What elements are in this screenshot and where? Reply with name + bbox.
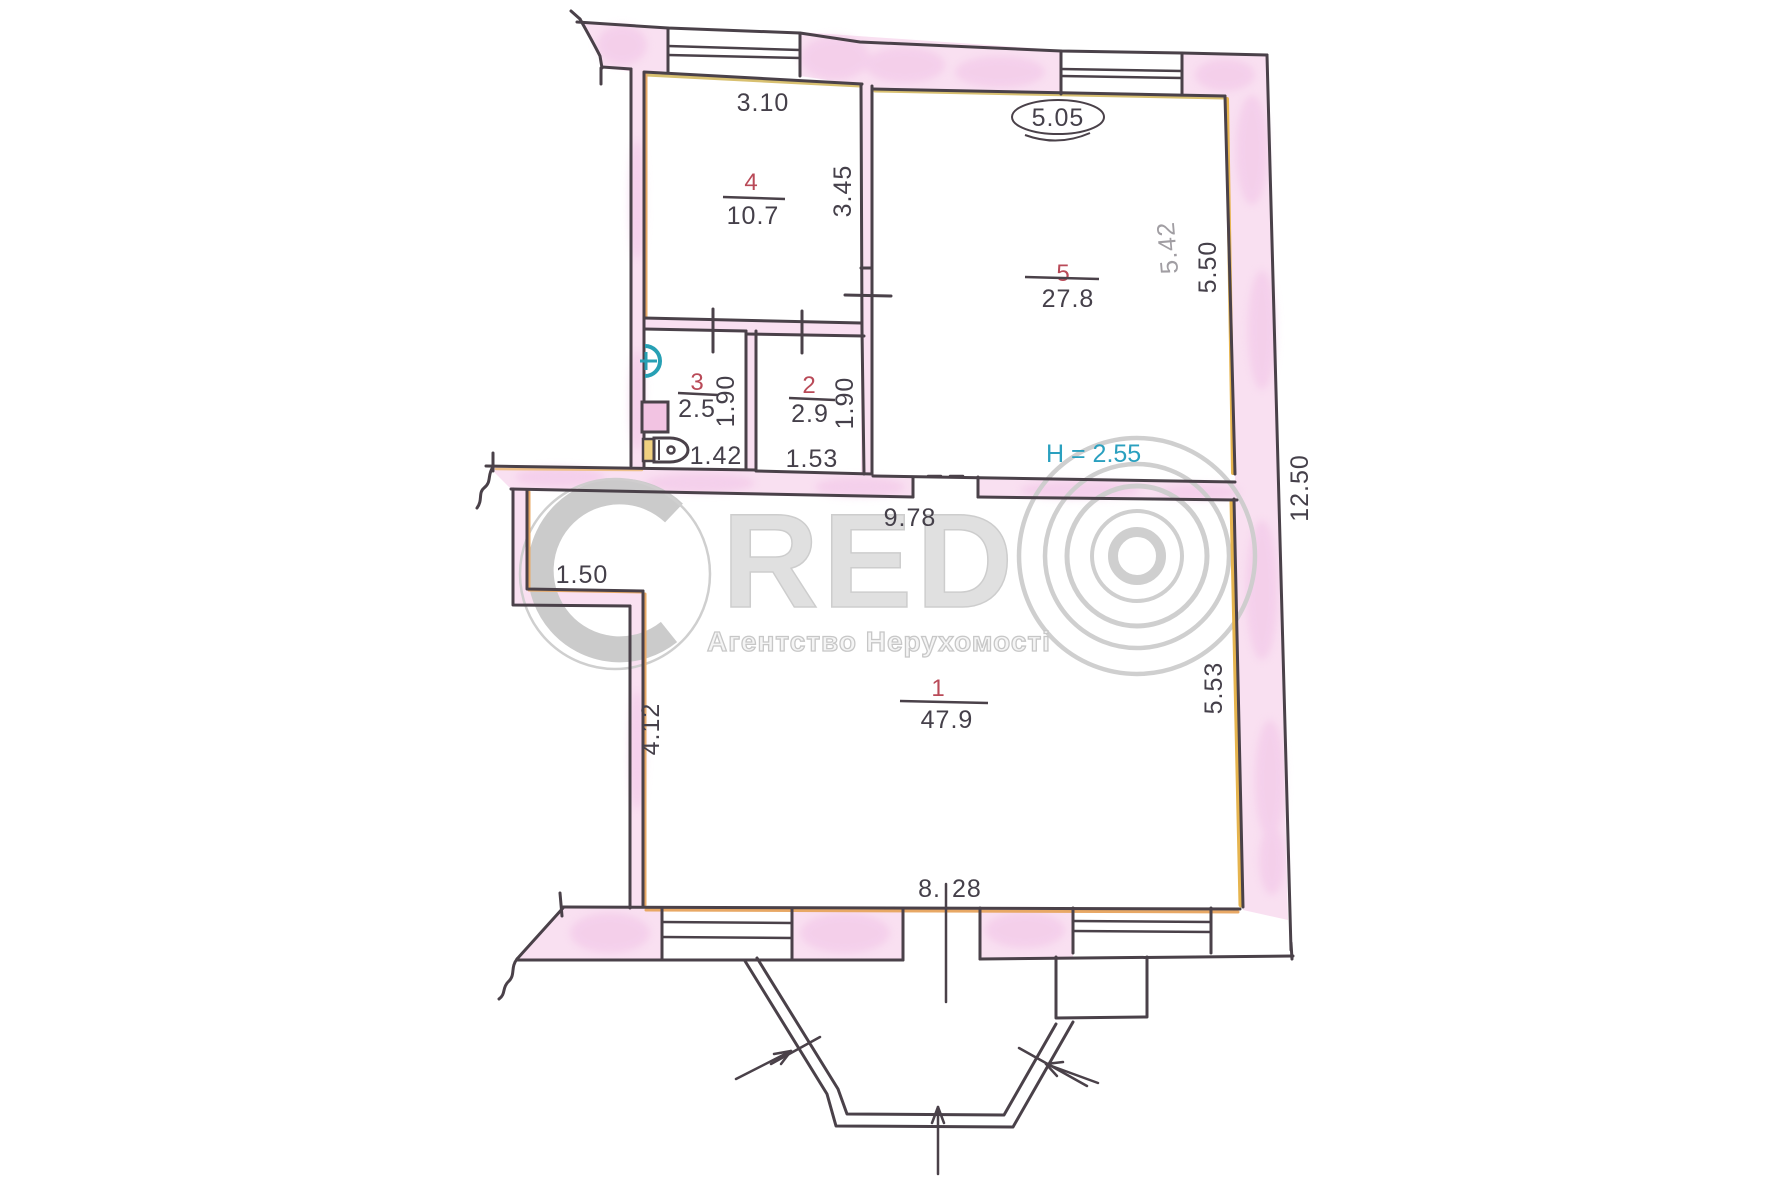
svg-text:1.90: 1.90: [831, 377, 859, 430]
svg-text:3: 3: [690, 369, 703, 396]
svg-text:1.90: 1.90: [712, 375, 740, 428]
svg-text:2: 2: [802, 372, 815, 399]
svg-text:2.5: 2.5: [678, 395, 716, 423]
svg-text:5.50: 5.50: [1194, 241, 1222, 294]
svg-text:27.8: 27.8: [1042, 285, 1095, 313]
svg-text:5.05: 5.05: [1032, 104, 1085, 132]
svg-text:8.: 8.: [918, 875, 941, 903]
svg-text:4.12: 4.12: [637, 703, 665, 756]
svg-text:10.7: 10.7: [727, 202, 780, 230]
svg-text:4: 4: [744, 169, 757, 196]
svg-text:9.78: 9.78: [884, 504, 937, 532]
svg-text:2.9: 2.9: [791, 400, 829, 428]
svg-text:28: 28: [952, 875, 982, 903]
svg-text:5.53: 5.53: [1200, 662, 1228, 715]
svg-text:Агентство Нерухомості: Агентство Нерухомості: [707, 626, 1051, 657]
svg-text:47.9: 47.9: [921, 706, 974, 734]
svg-text:5.42: 5.42: [1152, 220, 1184, 275]
svg-text:3.10: 3.10: [737, 89, 790, 117]
svg-text:H = 2.55: H = 2.55: [1046, 440, 1141, 468]
svg-text:RED: RED: [722, 487, 1017, 636]
svg-text:5: 5: [1056, 260, 1069, 287]
svg-text:12.50: 12.50: [1286, 454, 1314, 522]
svg-text:1.42: 1.42: [690, 442, 743, 470]
svg-text:3.45: 3.45: [829, 165, 857, 218]
svg-text:1.53: 1.53: [786, 445, 839, 473]
svg-text:1.50: 1.50: [556, 561, 609, 589]
svg-text:1: 1: [931, 675, 944, 702]
